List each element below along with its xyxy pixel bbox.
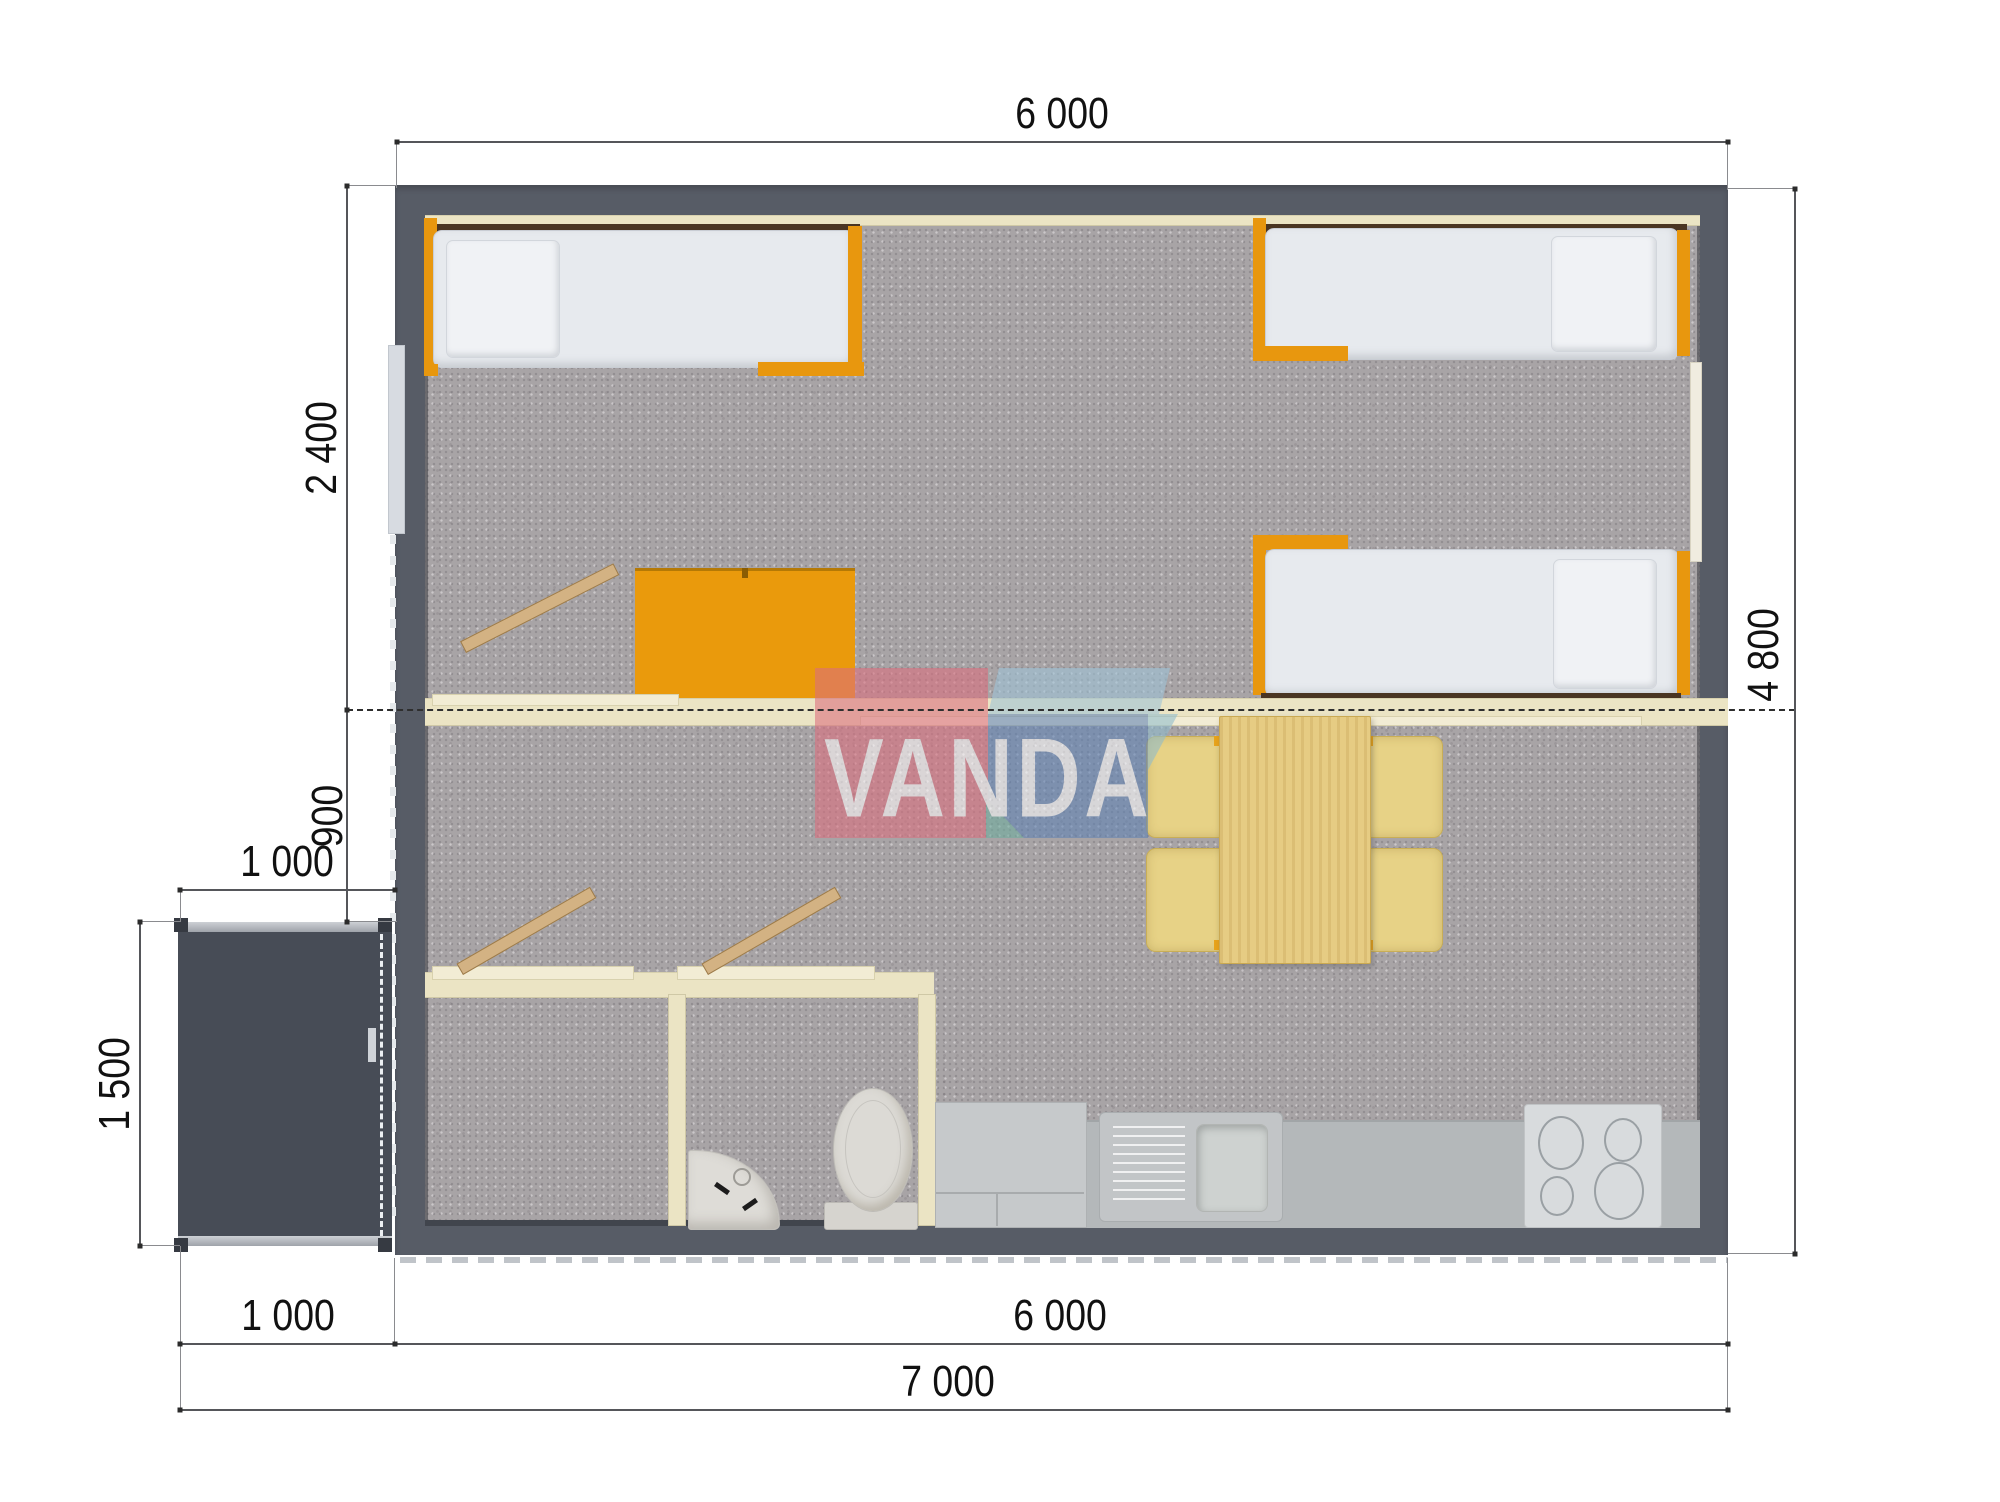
dimension-label-porch-width-bottom: 1 000 — [241, 1291, 335, 1341]
dimension-line-total-width — [180, 1409, 1728, 1411]
extension-line — [347, 185, 397, 186]
extension-line — [1727, 142, 1728, 190]
dimension-tick — [393, 1342, 398, 1347]
dimension-tick — [1793, 1252, 1798, 1257]
partition-axis-dashed-line — [347, 709, 1795, 711]
wardrobe-handle-notch — [742, 568, 748, 578]
dimension-tick — [138, 920, 143, 925]
extension-line — [1728, 188, 1795, 189]
extension-line — [347, 921, 397, 922]
dimension-tick — [345, 184, 350, 189]
sink-faucet — [733, 1168, 751, 1186]
toilet-lid-seam — [845, 1100, 901, 1198]
kitchen-cabinet-divider — [996, 1192, 998, 1226]
dimension-label-house-width-bottom: 6 000 — [1013, 1291, 1107, 1341]
dimension-tick — [178, 1342, 183, 1347]
dimension-label-total-width: 7 000 — [901, 1357, 995, 1407]
bathroom-right-wall — [918, 994, 936, 1226]
right-window-sill — [1690, 362, 1702, 562]
kitchen-cabinet-divider — [936, 1192, 1084, 1194]
left-window — [388, 345, 405, 534]
dimension-label-porch-width: 1 000 — [240, 837, 334, 887]
dimension-tick — [1726, 1342, 1731, 1347]
porch-step-edge — [178, 922, 392, 932]
dining-chair — [1146, 736, 1224, 838]
dining-chair — [1365, 736, 1443, 838]
kitchen-drainboard — [1113, 1126, 1185, 1206]
cooktop-burner — [1604, 1118, 1642, 1162]
dining-chair — [1365, 848, 1443, 952]
cooktop-burner — [1540, 1176, 1574, 1216]
bed-frame-rail — [1677, 230, 1690, 356]
entry-door-handle — [368, 1028, 376, 1062]
cooktop-burner — [1538, 1116, 1584, 1170]
dimension-tick — [1726, 140, 1731, 145]
dimension-tick — [395, 140, 400, 145]
dimension-label-bedroom-depth: 2 400 — [297, 401, 347, 495]
bed-mid-right — [1253, 535, 1690, 700]
bed-frame-rail — [1253, 346, 1348, 361]
bed-top-right — [1253, 218, 1690, 364]
dimension-tick — [1726, 1408, 1731, 1413]
dimension-tick — [345, 708, 350, 713]
dimension-tick — [1793, 187, 1798, 192]
floor-plan-canvas: VANDA 6 000 2 400 900 1 000 1 500 4 800 … — [0, 0, 2000, 1502]
entry-door-line — [380, 934, 383, 1236]
dimension-line-house-depth — [1794, 189, 1796, 1255]
dimension-label-porch-depth: 1 500 — [90, 1037, 140, 1131]
cooktop-burner — [1594, 1162, 1644, 1220]
extension-line — [1727, 1258, 1728, 1410]
kitchen-sink-basin — [1196, 1124, 1268, 1212]
extension-line — [180, 890, 181, 922]
dimension-label-top-width: 6 000 — [1015, 89, 1109, 139]
bed-frame-rail — [848, 226, 862, 362]
dimension-line-bottom-row1 — [180, 1343, 1728, 1345]
porch-post — [378, 1238, 392, 1252]
bed-frame-rail — [758, 362, 864, 376]
extension-line — [180, 1246, 181, 1410]
dimension-tick — [138, 1244, 143, 1249]
extension-line — [140, 1245, 180, 1246]
dimension-tick — [178, 888, 183, 893]
dimension-tick — [178, 1408, 183, 1413]
extension-line — [140, 921, 180, 922]
roof-overhang-dashes — [400, 1257, 1728, 1263]
dimension-line-porch-width — [180, 889, 395, 891]
porch-slab — [178, 922, 392, 1246]
extension-line — [1728, 1253, 1795, 1254]
bed-pillow — [1553, 559, 1657, 689]
extension-line — [396, 142, 397, 188]
extension-line — [394, 1258, 395, 1344]
dining-table — [1219, 716, 1371, 964]
porch-step-edge — [178, 1236, 392, 1246]
bed-frame-rail — [1253, 535, 1348, 550]
bathroom-divider-wall — [668, 994, 686, 1226]
wardrobe-cabinet — [635, 568, 855, 715]
dimension-line-top — [397, 141, 1728, 143]
dimension-tick — [345, 920, 350, 925]
dining-chair — [1146, 848, 1224, 952]
dimension-label-house-depth: 4 800 — [1739, 608, 1789, 702]
kitchen-cabinet — [935, 1102, 1087, 1228]
bed-pillow — [1551, 236, 1657, 352]
bed-frame-rail — [1677, 551, 1690, 695]
bed-pillow — [446, 240, 560, 358]
bed-top-left — [424, 218, 864, 376]
bed-frame-foot — [424, 364, 438, 376]
dimension-tick — [393, 888, 398, 893]
partition-plank-overlay — [432, 694, 679, 706]
